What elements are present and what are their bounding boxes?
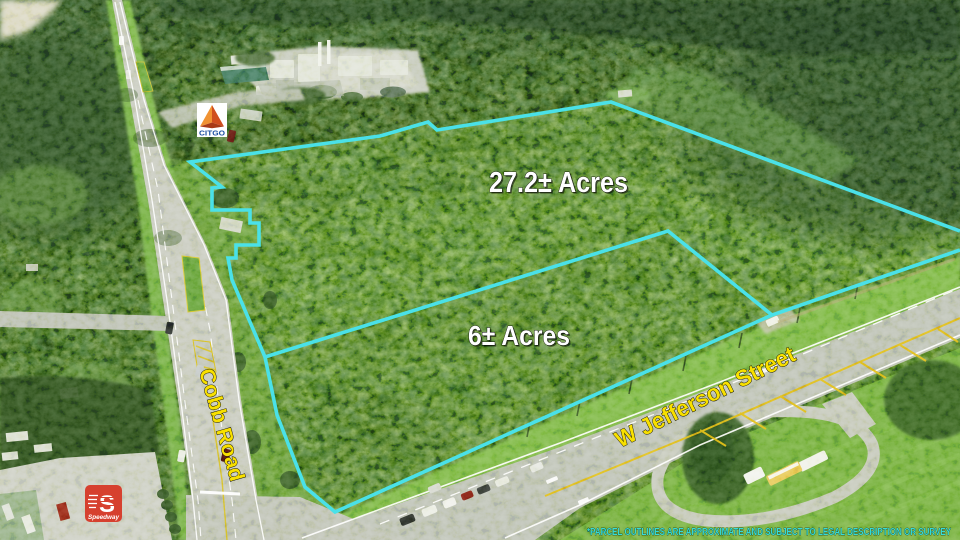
svg-text:6± Acres: 6± Acres bbox=[468, 320, 570, 351]
svg-text:Speedway: Speedway bbox=[88, 514, 120, 521]
svg-text:*PARCEL OUTLINES ARE APPROXIMA: *PARCEL OUTLINES ARE APPROXIMATE AND SUB… bbox=[587, 526, 951, 538]
svg-text:CITGO: CITGO bbox=[199, 129, 225, 138]
svg-text:27.2± Acres: 27.2± Acres bbox=[489, 167, 628, 199]
